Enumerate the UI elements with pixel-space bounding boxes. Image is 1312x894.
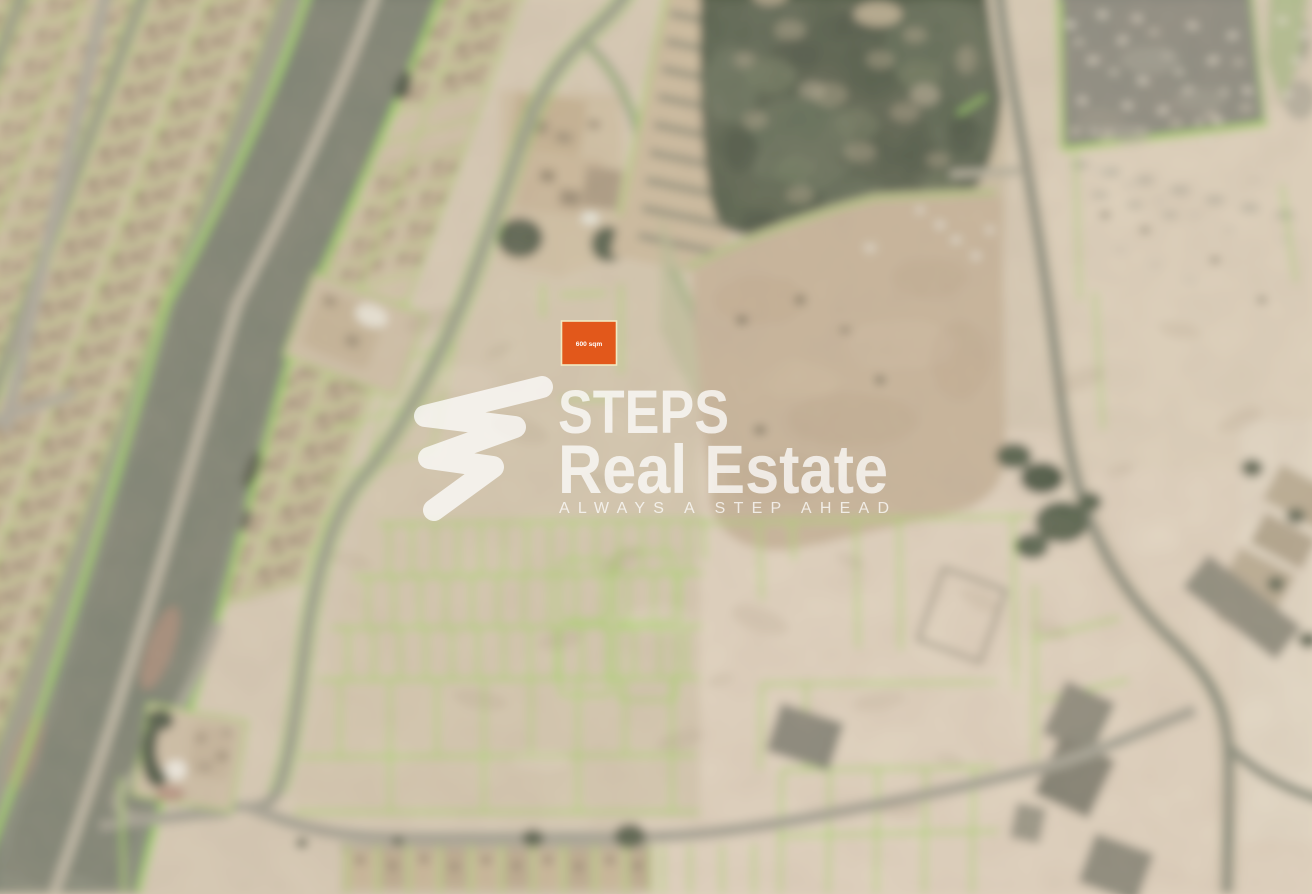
svg-text:Real Estate: Real Estate [558,431,888,508]
svg-text:600 sqm: 600 sqm [576,341,603,348]
